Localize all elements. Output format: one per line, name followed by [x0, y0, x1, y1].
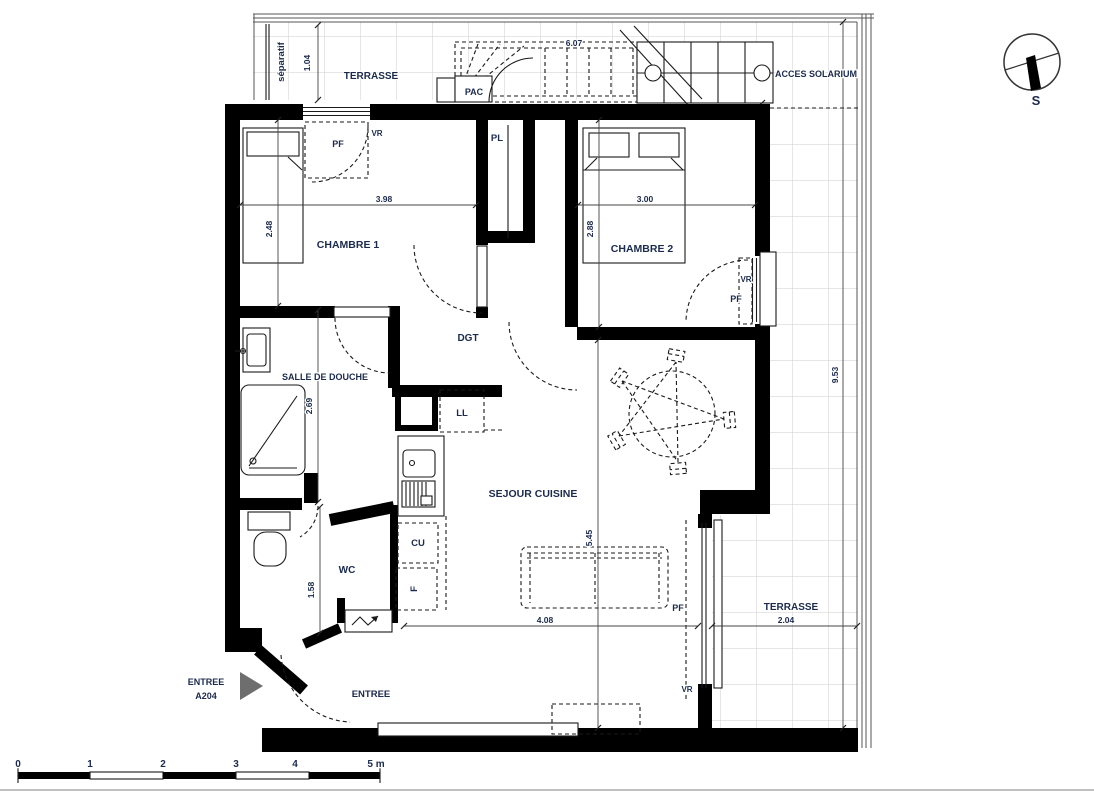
sejour-cuisine-label: SEJOUR CUISINE	[489, 488, 578, 500]
bed-single	[243, 128, 303, 263]
acces-solarium-marker	[754, 65, 770, 81]
dim-sdb-h: 2.69	[304, 397, 314, 414]
electrical-panel	[345, 610, 392, 632]
compass-south-label: S	[1032, 93, 1041, 108]
dim-chambre2-w: 3.00	[637, 194, 654, 204]
scale-4: 4	[292, 759, 298, 770]
separatif-label: séparatif	[276, 41, 287, 81]
scale-3: 3	[233, 759, 239, 770]
f-label: F	[409, 586, 420, 592]
sejour-window	[686, 520, 722, 700]
chambre2-window	[686, 252, 776, 326]
dim-terrace-right-w: 2.04	[778, 615, 795, 625]
dim-terrace-right-h: 9.53	[830, 366, 840, 383]
sejour-vr-label: VR	[681, 685, 692, 694]
cu-label: CU	[411, 538, 425, 549]
pac-label: PAC	[465, 87, 484, 97]
floor-plan-drawing: TERRASSE séparatif 1.04 PAC 6.07 ACCES S…	[0, 0, 1094, 800]
terrasse-right-label: TERRASSE	[764, 602, 819, 613]
chambre2-pf-label: PF	[730, 294, 742, 304]
entree-label: ENTREE	[352, 689, 391, 700]
scale-0: 0	[15, 759, 21, 770]
chambre1-label: CHAMBRE 1	[317, 239, 380, 251]
washbasin	[235, 328, 270, 372]
dgt-label: DGT	[457, 333, 478, 344]
dim-wc-h: 1.58	[306, 581, 316, 598]
chambre2-vr-label: VR	[740, 275, 751, 284]
dim-sejour-w: 4.08	[537, 615, 554, 625]
dim-chambre1-w: 3.98	[376, 194, 393, 204]
shower-tray	[241, 385, 305, 475]
scale-2: 2	[160, 759, 166, 770]
floor-plan-page: TERRASSE séparatif 1.04 PAC 6.07 ACCES S…	[0, 0, 1094, 800]
scale-1: 1	[87, 759, 93, 770]
sofa	[521, 547, 668, 608]
salle-de-douche-label: SALLE DE DOUCHE	[282, 372, 368, 382]
closet-pl-label: PL	[491, 133, 503, 144]
sejour-pf-label: PF	[672, 603, 684, 613]
dim-stairs: 6.07	[566, 38, 583, 48]
dim-chambre2-h: 2.88	[585, 220, 595, 237]
entry-arrow	[240, 672, 263, 700]
dim-sejour-h: 5.45	[584, 529, 594, 546]
chambre1-vr-label: VR	[371, 129, 382, 138]
acces-solarium-label: ACCES SOLARIUM	[775, 69, 857, 79]
toilet	[248, 512, 290, 566]
chambre2-label: CHAMBRE 2	[611, 243, 674, 255]
dim-chambre1-h: 2.48	[264, 220, 274, 237]
compass-icon	[1004, 34, 1060, 91]
chambre1-pf-label: PF	[332, 139, 344, 149]
entree-ref-line2: A204	[195, 691, 217, 701]
terrasse-top-label: TERRASSE	[344, 71, 399, 82]
dim-terrace-top: 1.04	[302, 54, 312, 71]
scale-5m: 5 m	[367, 759, 384, 770]
dining-table	[608, 349, 736, 475]
kitchen-block	[396, 390, 502, 610]
entree-ref-line1: ENTREE	[188, 677, 225, 687]
scale-bar	[18, 767, 380, 783]
wc-label: WC	[339, 565, 356, 576]
ll-label: LL	[456, 408, 468, 419]
